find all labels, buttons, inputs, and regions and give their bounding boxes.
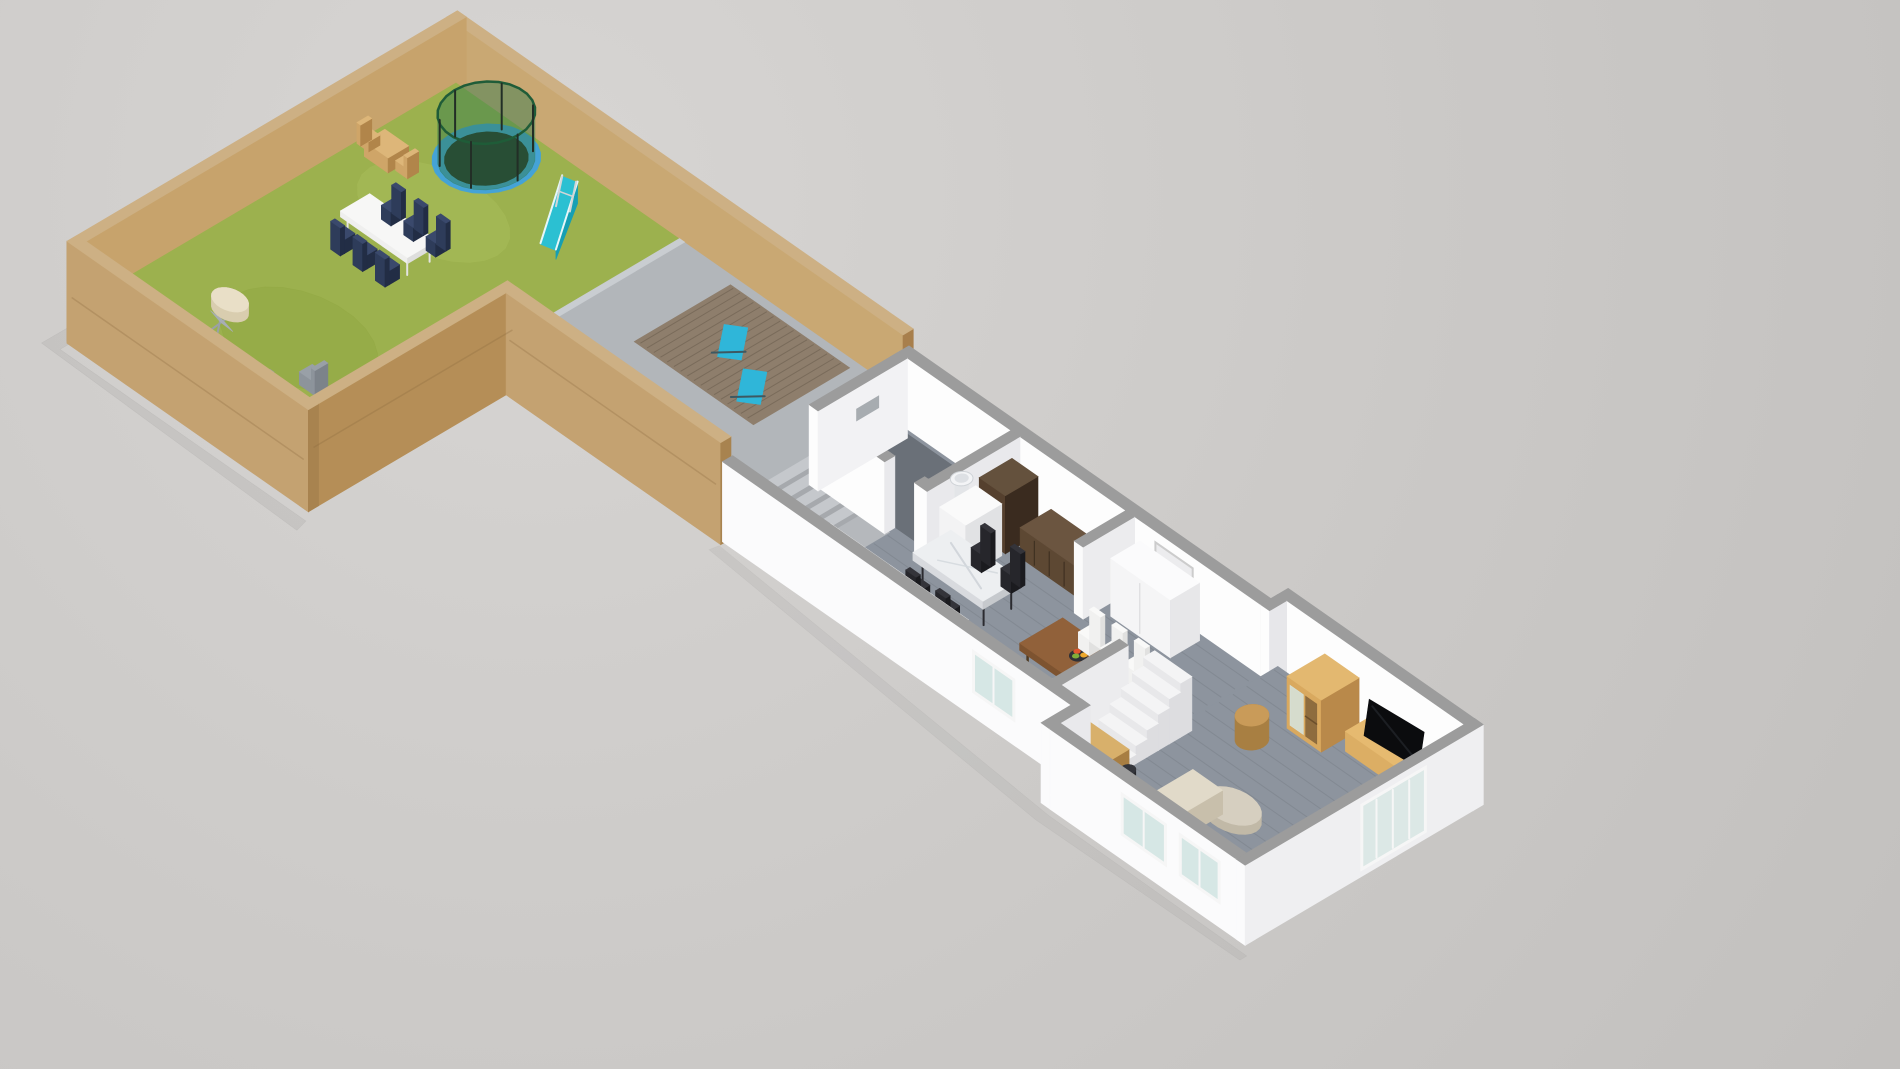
wc-wall-south — [885, 456, 895, 534]
hall-partition-wall — [1074, 541, 1083, 619]
bar-chair-back — [991, 531, 995, 568]
fruit — [1074, 649, 1081, 653]
bar-chair-back — [1021, 551, 1025, 588]
fruit — [1072, 654, 1079, 658]
round-side-table-top — [1235, 704, 1269, 726]
stair-tread — [1158, 708, 1169, 751]
entry-side-wall — [809, 405, 818, 491]
stair-tread — [1170, 692, 1181, 744]
stair-tread — [1181, 677, 1192, 738]
fence-south — [308, 404, 318, 512]
garden-chair-back — [401, 189, 405, 220]
deck-chair-frame — [712, 352, 746, 353]
house-wall-south-jog — [1041, 723, 1050, 809]
garden-chair-back — [424, 205, 428, 236]
garden-chair-back — [340, 226, 344, 257]
dining-chair-back — [1101, 615, 1105, 650]
house-wall-east-end — [1236, 859, 1245, 945]
wc-sink-bowl — [955, 474, 969, 483]
garden-chair-back — [446, 221, 450, 252]
garden-chair-back — [385, 257, 389, 288]
floor-plan-3d-render — [0, 0, 1900, 1069]
kids-chair-back — [357, 123, 361, 147]
deck-chair-frame — [731, 396, 765, 397]
floor-plan-stage — [0, 0, 1900, 1069]
kids-chair-back — [404, 155, 408, 179]
garden-chair-back — [363, 241, 367, 272]
gray-garden-chair-back — [311, 368, 315, 396]
